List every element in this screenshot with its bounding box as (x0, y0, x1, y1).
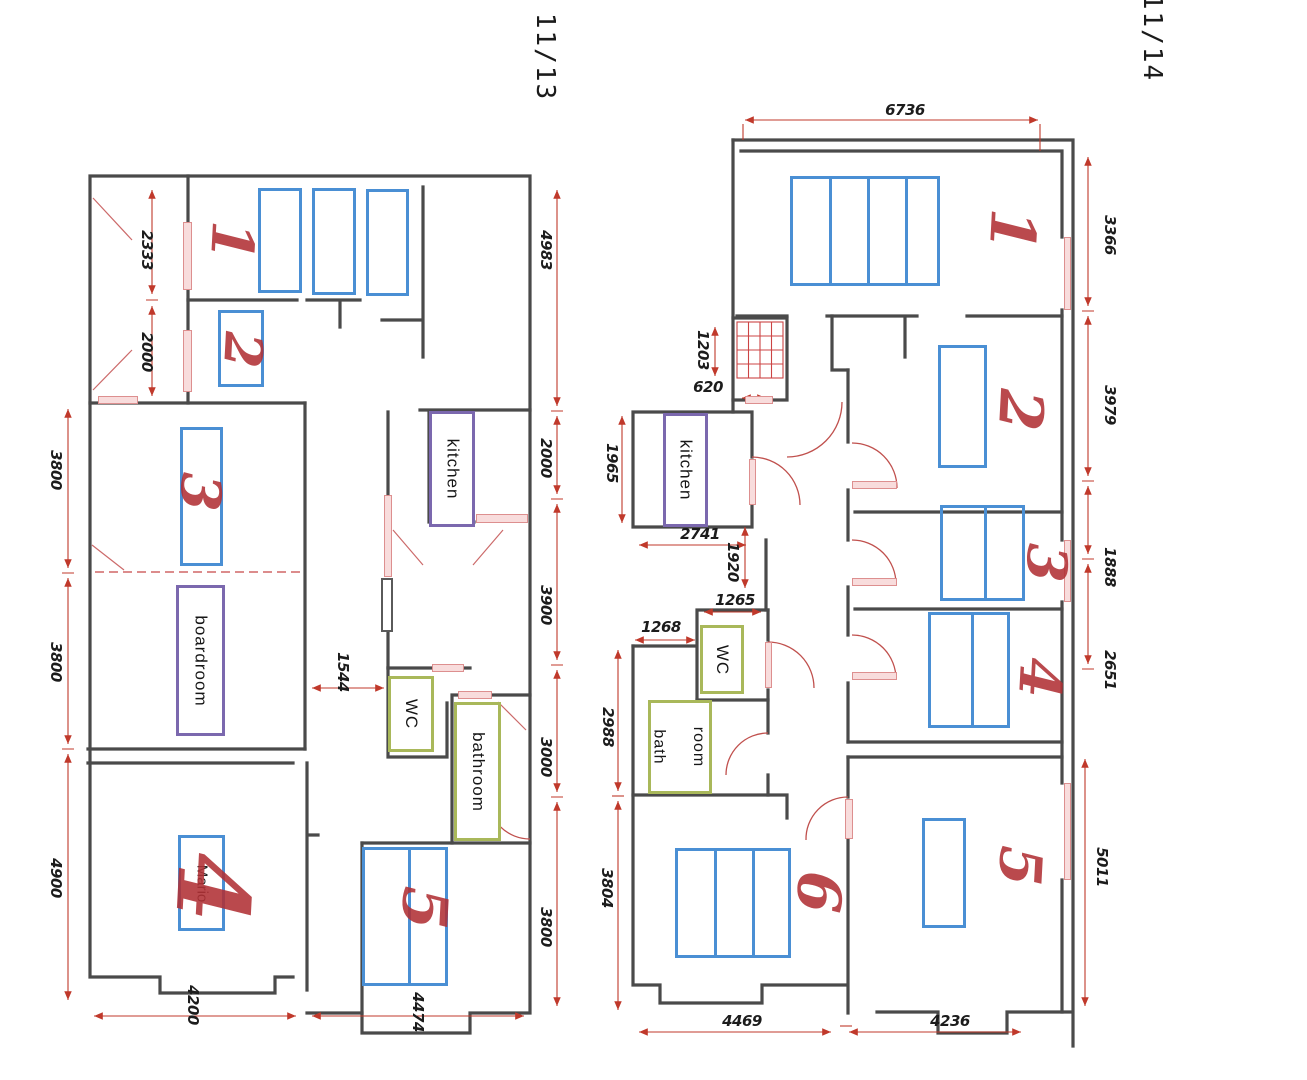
room-number-4: 4 (1010, 656, 1070, 699)
window-bar (1064, 783, 1071, 880)
dim-4983: 4983 (537, 230, 555, 270)
dim-3979: 3979 (1101, 385, 1119, 425)
dim-2651: 2651 (1101, 650, 1119, 690)
dim-620: 620 (693, 378, 723, 396)
window-panel-pair (928, 612, 1010, 728)
door-opening-bar (183, 330, 192, 392)
room-number-3: 3 (173, 471, 230, 512)
panel-divider (752, 850, 755, 956)
dim-3900: 3900 (537, 585, 555, 625)
dim-2000: 2000 (138, 332, 156, 372)
dim-2000: 2000 (537, 438, 555, 478)
window-panel (312, 188, 356, 295)
entry-door-bar (745, 396, 773, 404)
panel-divider (867, 178, 870, 284)
stairs-grid (737, 322, 783, 378)
dim-5011: 5011 (1093, 847, 1111, 887)
dim-3800: 3800 (537, 907, 555, 947)
dim-1888: 1888 (1101, 547, 1119, 587)
page-number-left: 11/13 (530, 13, 560, 101)
dim-3000: 3000 (537, 737, 555, 777)
room-number-4: 4 (161, 851, 265, 926)
dim-1265: 1265 (715, 591, 755, 609)
dim-3800: 3800 (47, 642, 65, 682)
window-bar (1064, 237, 1071, 310)
dim-6736: 6736 (885, 101, 925, 119)
furniture-box (938, 345, 987, 468)
dim-2741: 2741 (680, 525, 720, 543)
room-number-1: 1 (980, 207, 1044, 253)
bathroom-label-box-right: bath room (648, 700, 712, 794)
scanned-floorplan-sheet: Mario kitchen boardroom WC bathroom kitc… (0, 0, 1307, 1080)
wc-label-box-left: WC (388, 676, 434, 752)
window-panel (366, 189, 409, 296)
page-number-right: 11/14 (1137, 0, 1167, 82)
room-number-3: 3 (1019, 542, 1076, 583)
kitchen-door-bar (749, 459, 756, 505)
panel-divider (829, 178, 832, 284)
boardroom-label-box: boardroom (176, 585, 225, 736)
door-leaf (381, 578, 393, 632)
panel-divider (984, 507, 987, 599)
dim-3366: 3366 (1101, 215, 1119, 255)
window-panel-quad (790, 176, 940, 286)
wc-door-bar (765, 642, 772, 688)
wc-door-bar (432, 664, 464, 672)
bathroom-label: bathroom (468, 732, 488, 812)
bathroom-door-bar (458, 691, 492, 699)
dim-3800: 3800 (47, 450, 65, 490)
dim-1268: 1268 (641, 618, 681, 636)
door-opening-bar (183, 222, 192, 290)
window-panel-triple (675, 848, 791, 958)
door-sill (852, 578, 897, 586)
kitchen-label-box-left: kitchen (429, 411, 475, 527)
door-sill (852, 672, 897, 680)
room-number-2: 2 (989, 388, 1051, 433)
dim-4200: 4200 (184, 985, 202, 1025)
boardroom-label: boardroom (191, 615, 211, 706)
dim-4474: 4474 (409, 992, 427, 1032)
panel-divider (714, 850, 717, 956)
door-opening-bar (384, 495, 392, 577)
window-panel-pair (940, 505, 1025, 601)
dim-2333: 2333 (138, 230, 156, 270)
kitchen-door-bar (476, 514, 528, 523)
dim-1965: 1965 (603, 443, 621, 483)
furniture-box (922, 818, 966, 928)
wc-label: WC (401, 699, 421, 729)
wc-label-box-right: WC (700, 625, 744, 694)
kitchen-label: kitchen (676, 440, 696, 501)
dim-3804: 3804 (598, 868, 616, 908)
bathroom-label-line2: room (690, 727, 708, 767)
room-number-5: 5 (990, 844, 1050, 887)
door-sill (845, 799, 853, 839)
room-number-6: 6 (787, 870, 849, 915)
kitchen-label: kitchen (442, 439, 462, 500)
dim-1920: 1920 (724, 542, 742, 582)
bathroom-label-box-left: bathroom (454, 702, 501, 841)
dim-2988: 2988 (599, 707, 617, 747)
dim-4236: 4236 (930, 1012, 970, 1030)
room-number-5: 5 (392, 885, 456, 931)
bathroom-label-line1: bath (650, 729, 668, 764)
dim-1203: 1203 (694, 330, 712, 370)
room-number-1: 1 (202, 219, 262, 262)
panel-divider (971, 614, 974, 726)
door-sill (852, 481, 897, 489)
dim-4469: 4469 (722, 1012, 762, 1030)
room-number-2: 2 (215, 331, 269, 370)
dim-4900: 4900 (47, 858, 65, 898)
wc-label: WC (712, 644, 732, 674)
dim-1544: 1544 (334, 652, 352, 692)
kitchen-label-box-right: kitchen (663, 413, 708, 527)
window-bar (98, 396, 138, 404)
panel-divider (905, 178, 908, 284)
